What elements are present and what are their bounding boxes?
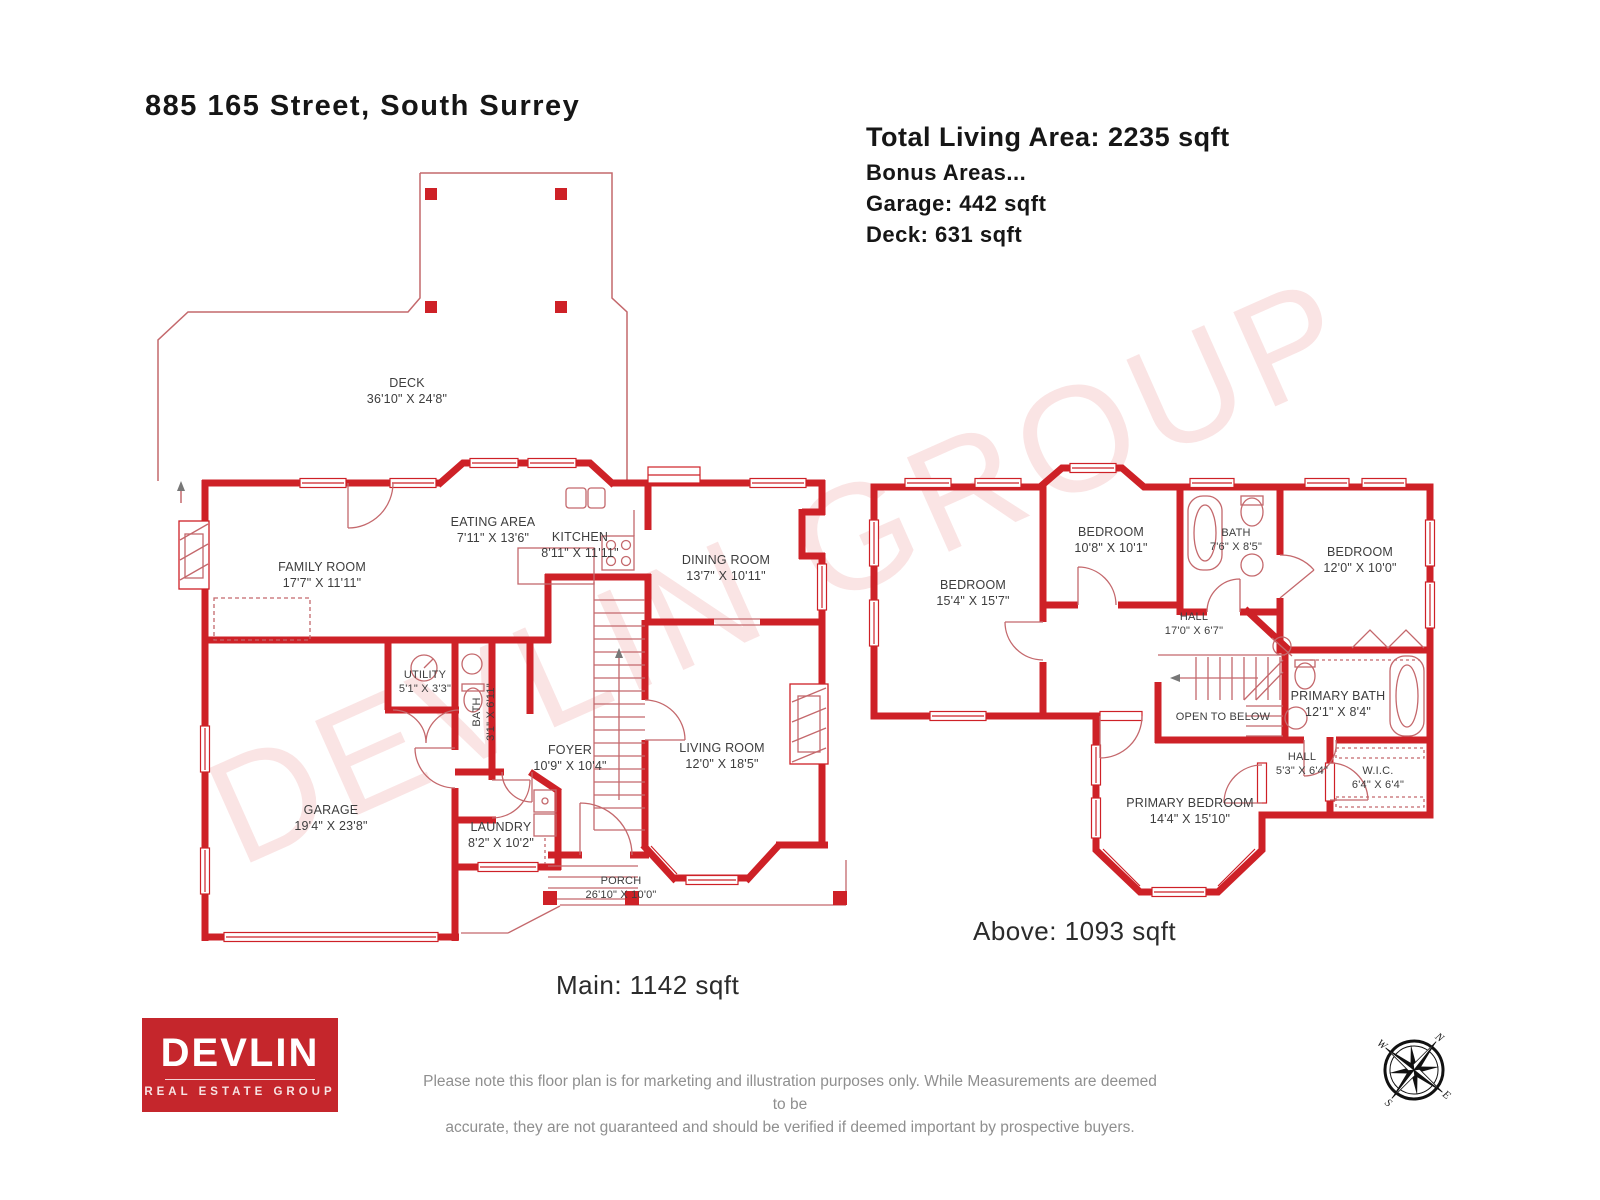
room-label-bath-main: BATH 3'1" X 6'11": [470, 683, 498, 741]
compass-e: E: [1439, 1088, 1453, 1102]
room-label-kitchen: KITCHEN 8'11" X 11'11": [541, 529, 619, 561]
area-summary: Total Living Area: 2235 sqft Bonus Areas…: [866, 122, 1230, 248]
logo-divider: [165, 1079, 315, 1080]
disclaimer: Please note this floor plan is for marke…: [420, 1070, 1160, 1139]
fireplace-family-room: [179, 521, 209, 589]
floor-plan-page: DEVLIN GROUP 885 165 Street, South Surre…: [0, 0, 1600, 1200]
room-label-hall-small: HALL 5'3" X 6'4": [1276, 750, 1328, 778]
room-label-bedroom-1: BEDROOM 15'4" X 15'7": [936, 577, 1009, 609]
room-label-open-to-below: OPEN TO BELOW: [1176, 710, 1271, 724]
room-label-bedroom-2: BEDROOM 10'8" X 10'1": [1074, 524, 1147, 556]
room-label-primary-bath: PRIMARY BATH 12'1" X 8'4": [1291, 688, 1386, 720]
total-living-area: Total Living Area: 2235 sqft: [866, 122, 1230, 153]
room-label-bath-upper: BATH 7'6" X 8'5": [1210, 526, 1262, 554]
compass-w: W: [1374, 1037, 1389, 1053]
room-label-primary-bedroom: PRIMARY BEDROOM 14'4" X 15'10": [1126, 795, 1254, 827]
room-label-laundry: LAUNDRY 8'2" X 10'2": [468, 819, 534, 851]
upper-floor-area-label: Above: 1093 sqft: [973, 916, 1176, 947]
deck-area-line: Deck: 631 sqft: [866, 222, 1230, 248]
compass-s: S: [1382, 1097, 1394, 1110]
disclaimer-line-2: accurate, they are not guaranteed and sh…: [420, 1116, 1160, 1139]
room-label-deck: DECK 36'10" X 24'8": [367, 375, 447, 407]
room-label-eating-area: EATING AREA 7'11" X 13'6": [451, 514, 536, 546]
room-label-living-room: LIVING ROOM 12'0" X 18'5": [679, 740, 765, 772]
page-title: 885 165 Street, South Surrey: [145, 90, 580, 123]
room-label-foyer: FOYER 10'9" X 10'4": [533, 742, 606, 774]
fireplace-living-room: [790, 684, 828, 764]
deck-outline: [158, 173, 627, 503]
compass-n: N: [1432, 1030, 1446, 1045]
room-label-wic: W.I.C. 6'4" X 6'4": [1352, 764, 1404, 792]
upper-floor-walls: [874, 468, 1433, 892]
devlin-logo: DEVLIN REAL ESTATE GROUP: [142, 1018, 338, 1112]
room-label-family-room: FAMILY ROOM 17'7" X 11'11": [278, 559, 366, 591]
logo-title: DEVLIN: [161, 1033, 320, 1073]
logo-subtitle: REAL ESTATE GROUP: [144, 1086, 335, 1098]
room-label-bedroom-3: BEDROOM 12'0" X 10'0": [1323, 544, 1396, 576]
deck-posts: [177, 188, 567, 491]
room-label-porch: PORCH 26'10" X 10'0": [585, 874, 656, 902]
upper-floor-windows: [870, 464, 1435, 897]
garage-area-line: Garage: 442 sqft: [866, 191, 1230, 217]
compass-rose-icon: N E S W: [1372, 1028, 1456, 1112]
disclaimer-line-1: Please note this floor plan is for marke…: [420, 1070, 1160, 1116]
main-floor-area-label: Main: 1142 sqft: [556, 970, 739, 1001]
room-label-utility: UTILITY 5'1" X 3'3": [399, 668, 451, 696]
bonus-areas-line: Bonus Areas...: [866, 160, 1230, 186]
room-label-hall-upper: HALL 17'0" X 6'7": [1165, 610, 1223, 638]
room-label-garage: GARAGE 19'4" X 23'8": [294, 802, 367, 834]
room-label-dining-room: DINING ROOM 13'7" X 10'11": [682, 552, 770, 584]
